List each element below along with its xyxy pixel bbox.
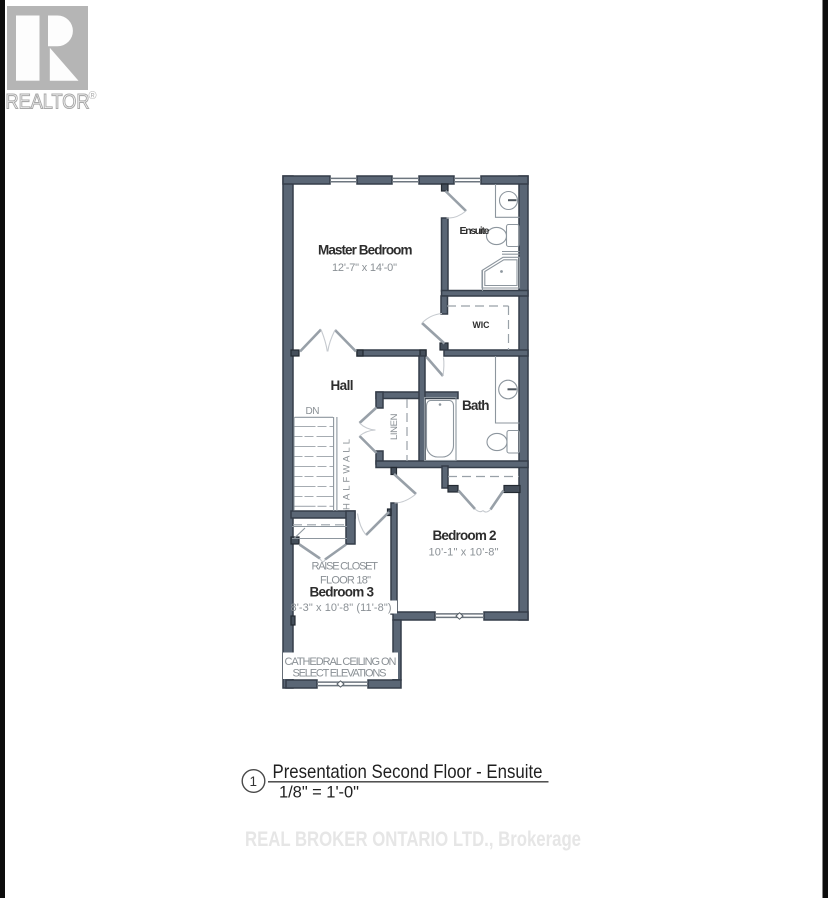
svg-text:HALFWALL: HALFWALL [342, 438, 353, 510]
svg-text:12'-7" x 14'-0": 12'-7" x 14'-0" [332, 262, 397, 274]
svg-text:WIC: WIC [473, 320, 490, 331]
svg-text:Ensuite: Ensuite [460, 225, 490, 237]
svg-text:Hall: Hall [331, 378, 354, 393]
svg-text:REAL BROKER ONTARIO LTD., Brok: REAL BROKER ONTARIO LTD., Brokerage [245, 828, 581, 851]
svg-text:®: ® [89, 90, 97, 102]
svg-text:LINEN: LINEN [389, 413, 400, 440]
svg-text:8'-3" x 10'-8" (11'-8"): 8'-3" x 10'-8" (11'-8") [291, 602, 392, 614]
svg-text:Bath: Bath [462, 398, 490, 413]
svg-text:CATHEDRAL CEILING ON: CATHEDRAL CEILING ON [285, 656, 397, 668]
svg-text:Presentation Second Floor - En: Presentation Second Floor - Ensuite [273, 761, 543, 783]
svg-text:10'-1" x 10'-8": 10'-1" x 10'-8" [429, 547, 499, 559]
svg-text:REALTOR: REALTOR [6, 91, 90, 114]
svg-text:1: 1 [250, 774, 258, 789]
svg-text:1/8" = 1'-0": 1/8" = 1'-0" [279, 784, 359, 802]
svg-text:DN: DN [306, 406, 320, 417]
svg-text:Bedroom 2: Bedroom 2 [433, 528, 497, 543]
svg-text:RAISE CLOSET: RAISE CLOSET [312, 561, 379, 573]
svg-text:Bedroom 3: Bedroom 3 [310, 585, 375, 600]
svg-text:SELECT ELEVATIONS: SELECT ELEVATIONS [293, 668, 387, 680]
svg-text:Master Bedroom: Master Bedroom [318, 243, 413, 258]
